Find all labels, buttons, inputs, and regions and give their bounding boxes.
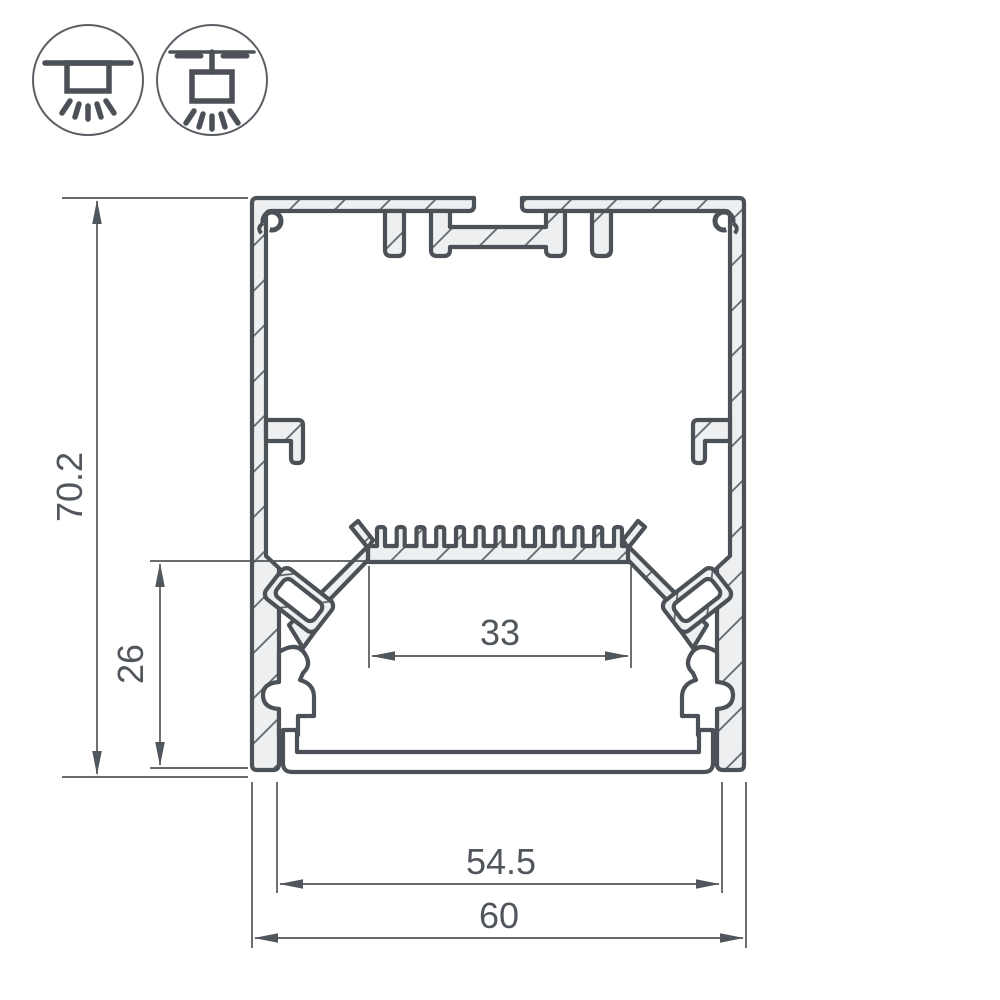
mid-wall-hook-left	[266, 420, 303, 463]
top-channel-leg-outer-left	[385, 211, 404, 256]
label-overall-width: 60	[479, 895, 519, 936]
profile-cross-section	[252, 198, 744, 772]
label-led-platform-width: 33	[480, 612, 520, 653]
heatsink-end-prong-left	[351, 521, 373, 548]
label-lower-inner-height: 26	[110, 644, 151, 684]
technical-drawing-page: 70.2 26 33 54.5 60	[0, 0, 1000, 1000]
label-inner-width: 54.5	[466, 841, 536, 882]
pendant-mount-icon	[157, 25, 267, 135]
surface-mount-icon	[33, 25, 143, 135]
mid-wall-hook-right	[693, 420, 730, 463]
diffuser-plate	[283, 730, 713, 772]
top-channel-leg-outer-right	[592, 211, 611, 256]
led-profile-cross-section-drawing: 70.2 26 33 54.5 60	[0, 0, 1000, 1000]
top-channel-bridge	[431, 211, 565, 256]
label-overall-height: 70.2	[49, 452, 90, 522]
heatsink-plate-with-fins	[368, 527, 630, 562]
heatsink-end-prong-right	[623, 521, 645, 548]
mount-type-icons	[33, 25, 267, 135]
